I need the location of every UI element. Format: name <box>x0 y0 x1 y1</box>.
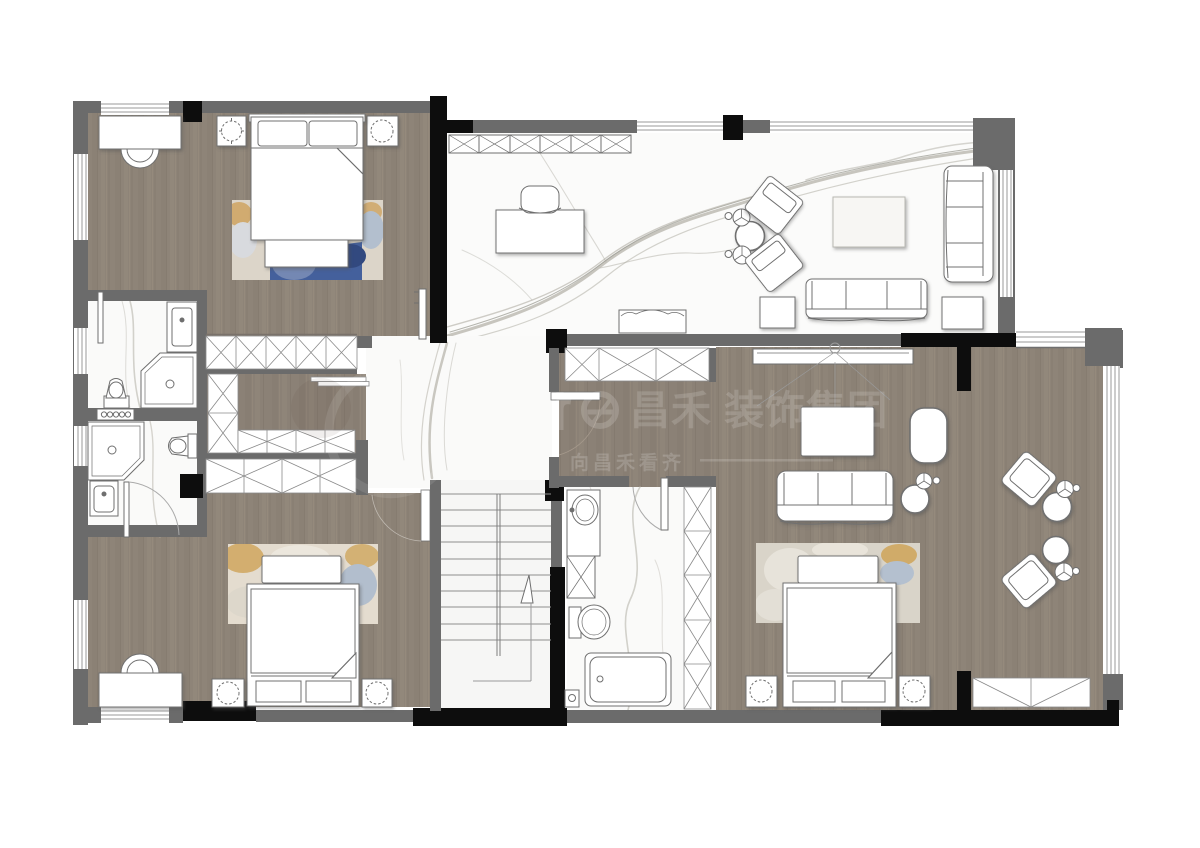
svg-text:向昌禾看齐: 向昌禾看齐 <box>570 451 685 474</box>
svg-text:昌禾 装饰集团: 昌禾 装饰集团 <box>630 389 888 433</box>
